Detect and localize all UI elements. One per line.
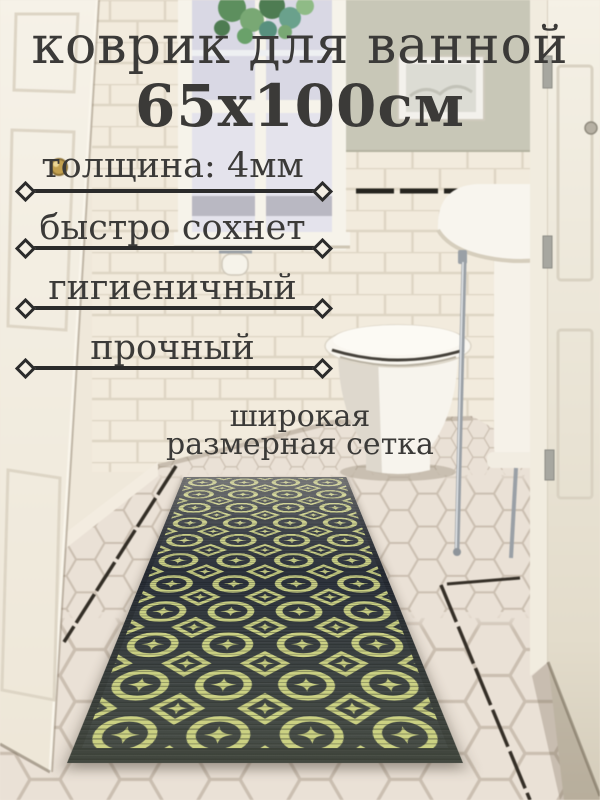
product-image: коврик для ванной 65x100см толщина: 4мм … (0, 0, 600, 800)
divider-bar (30, 366, 318, 370)
product-size: 65x100см (0, 74, 600, 138)
divider-bar (30, 306, 318, 310)
divider-bar (30, 189, 318, 193)
feature-divider (18, 302, 330, 314)
feature-divider (18, 242, 330, 254)
product-title: коврик для ванной (0, 16, 600, 76)
feature-label: толщина: 4мм (0, 146, 345, 186)
size-range-note-line2: размерная сетка (140, 431, 460, 459)
feature-divider (18, 362, 330, 374)
feature-divider (18, 185, 330, 197)
size-range-note: широкая размерная сетка (140, 403, 460, 459)
divider-bar (30, 246, 318, 250)
text-overlay: коврик для ванной 65x100см толщина: 4мм … (0, 0, 600, 800)
